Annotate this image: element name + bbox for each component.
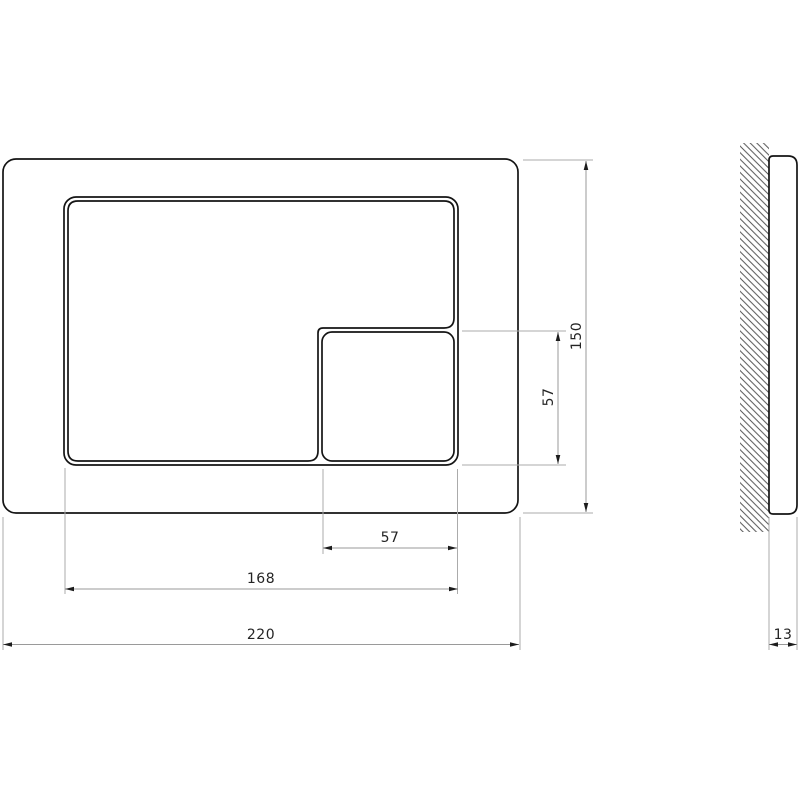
side-view: 13 [740,143,797,650]
flush-plate-outline [3,159,518,513]
dim-small-button-width: 57 [323,469,458,594]
front-view: 150 57 57 [3,159,593,650]
dim-plate-depth: 13 [769,517,797,650]
dim-arrow-up [556,332,561,341]
dim-arrow-left [3,642,12,647]
small-button-outline [322,332,454,461]
dim-label-small-button-width: 57 [381,530,400,546]
dim-arrow-up [584,161,589,170]
dim-arrow-down [556,455,561,464]
dim-arrow-left [323,546,332,551]
dim-label-plate-depth: 13 [774,627,793,643]
dim-label-button-area-width: 168 [247,571,275,587]
dim-arrow-right [449,587,458,592]
dim-label-plate-width: 220 [247,627,275,643]
button-recess-outline [64,197,458,465]
large-button-outline [68,201,454,461]
dim-small-button-height: 57 [462,331,566,465]
dim-arrow-right [510,642,519,647]
flush-plate-technical-drawing: 150 57 57 [0,0,800,800]
dim-arrow-down [584,503,589,512]
dim-arrow-right [448,546,457,551]
dim-label-small-button-height: 57 [541,388,557,407]
side-profile-outline [769,156,797,514]
dim-arrow-left [65,587,74,592]
dim-label-plate-height: 150 [569,322,585,350]
technical-drawing-page: 150 57 57 [0,0,800,800]
wall-hatch [740,143,769,532]
